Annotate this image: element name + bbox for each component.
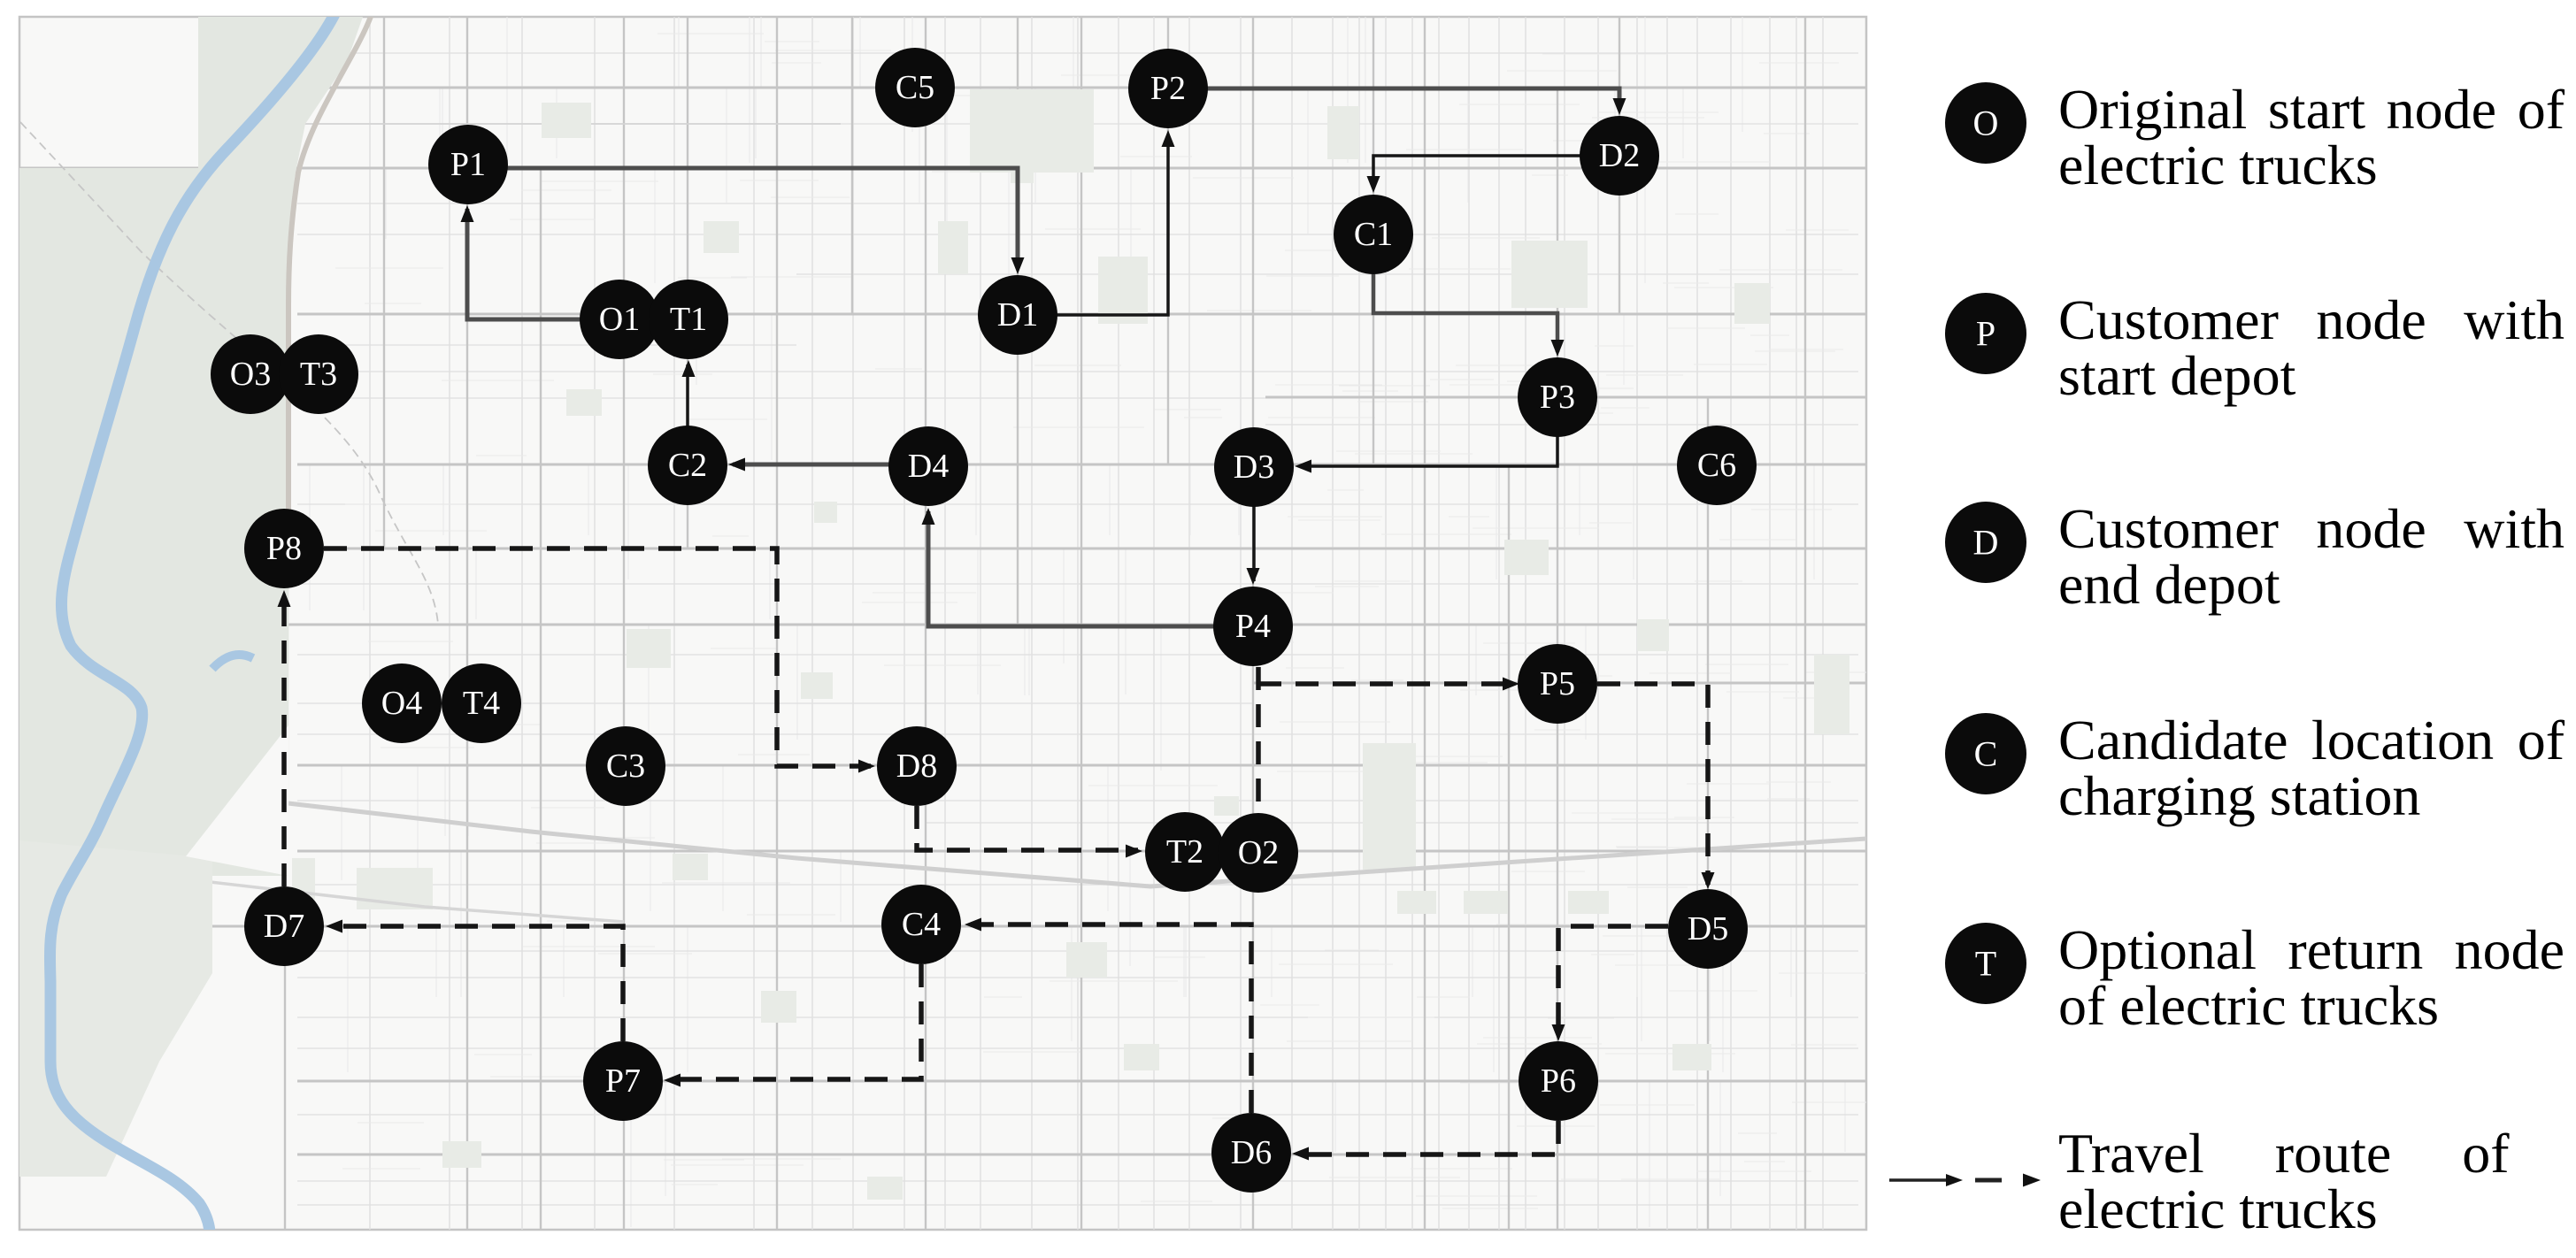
svg-text:C: C xyxy=(1974,734,1998,774)
svg-text:D7: D7 xyxy=(264,908,304,945)
svg-text:T1: T1 xyxy=(670,301,707,338)
svg-text:O1: O1 xyxy=(599,301,640,338)
svg-text:C4: C4 xyxy=(902,906,941,943)
svg-text:P4: P4 xyxy=(1235,608,1271,645)
svg-text:C3: C3 xyxy=(606,748,645,785)
svg-text:D3: D3 xyxy=(1234,449,1274,486)
svg-text:P2: P2 xyxy=(1150,70,1186,107)
svg-text:O: O xyxy=(1973,104,1999,143)
svg-text:O4: O4 xyxy=(381,685,422,722)
svg-text:P3: P3 xyxy=(1540,379,1575,416)
svg-text:C6: C6 xyxy=(1697,447,1736,484)
svg-text:D: D xyxy=(1973,523,1999,563)
svg-text:P7: P7 xyxy=(605,1062,641,1100)
svg-text:D6: D6 xyxy=(1231,1134,1272,1171)
svg-text:P8: P8 xyxy=(266,530,302,567)
svg-text:C5: C5 xyxy=(896,69,934,106)
svg-text:C1: C1 xyxy=(1354,216,1393,253)
svg-text:O2: O2 xyxy=(1238,834,1279,871)
svg-text:D5: D5 xyxy=(1688,910,1728,947)
svg-text:D1: D1 xyxy=(997,296,1038,334)
svg-text:T2: T2 xyxy=(1166,833,1203,871)
svg-text:T: T xyxy=(1975,944,1996,984)
svg-text:D4: D4 xyxy=(908,448,949,485)
svg-text:P6: P6 xyxy=(1541,1062,1576,1100)
svg-text:T3: T3 xyxy=(300,356,337,393)
svg-text:D2: D2 xyxy=(1599,137,1640,174)
svg-text:P5: P5 xyxy=(1540,665,1575,702)
svg-text:C2: C2 xyxy=(668,447,707,484)
svg-text:P1: P1 xyxy=(450,146,486,183)
svg-text:D8: D8 xyxy=(896,748,937,785)
svg-text:T4: T4 xyxy=(463,685,500,722)
svg-text:O3: O3 xyxy=(230,356,271,393)
svg-text:P: P xyxy=(1976,314,1995,354)
